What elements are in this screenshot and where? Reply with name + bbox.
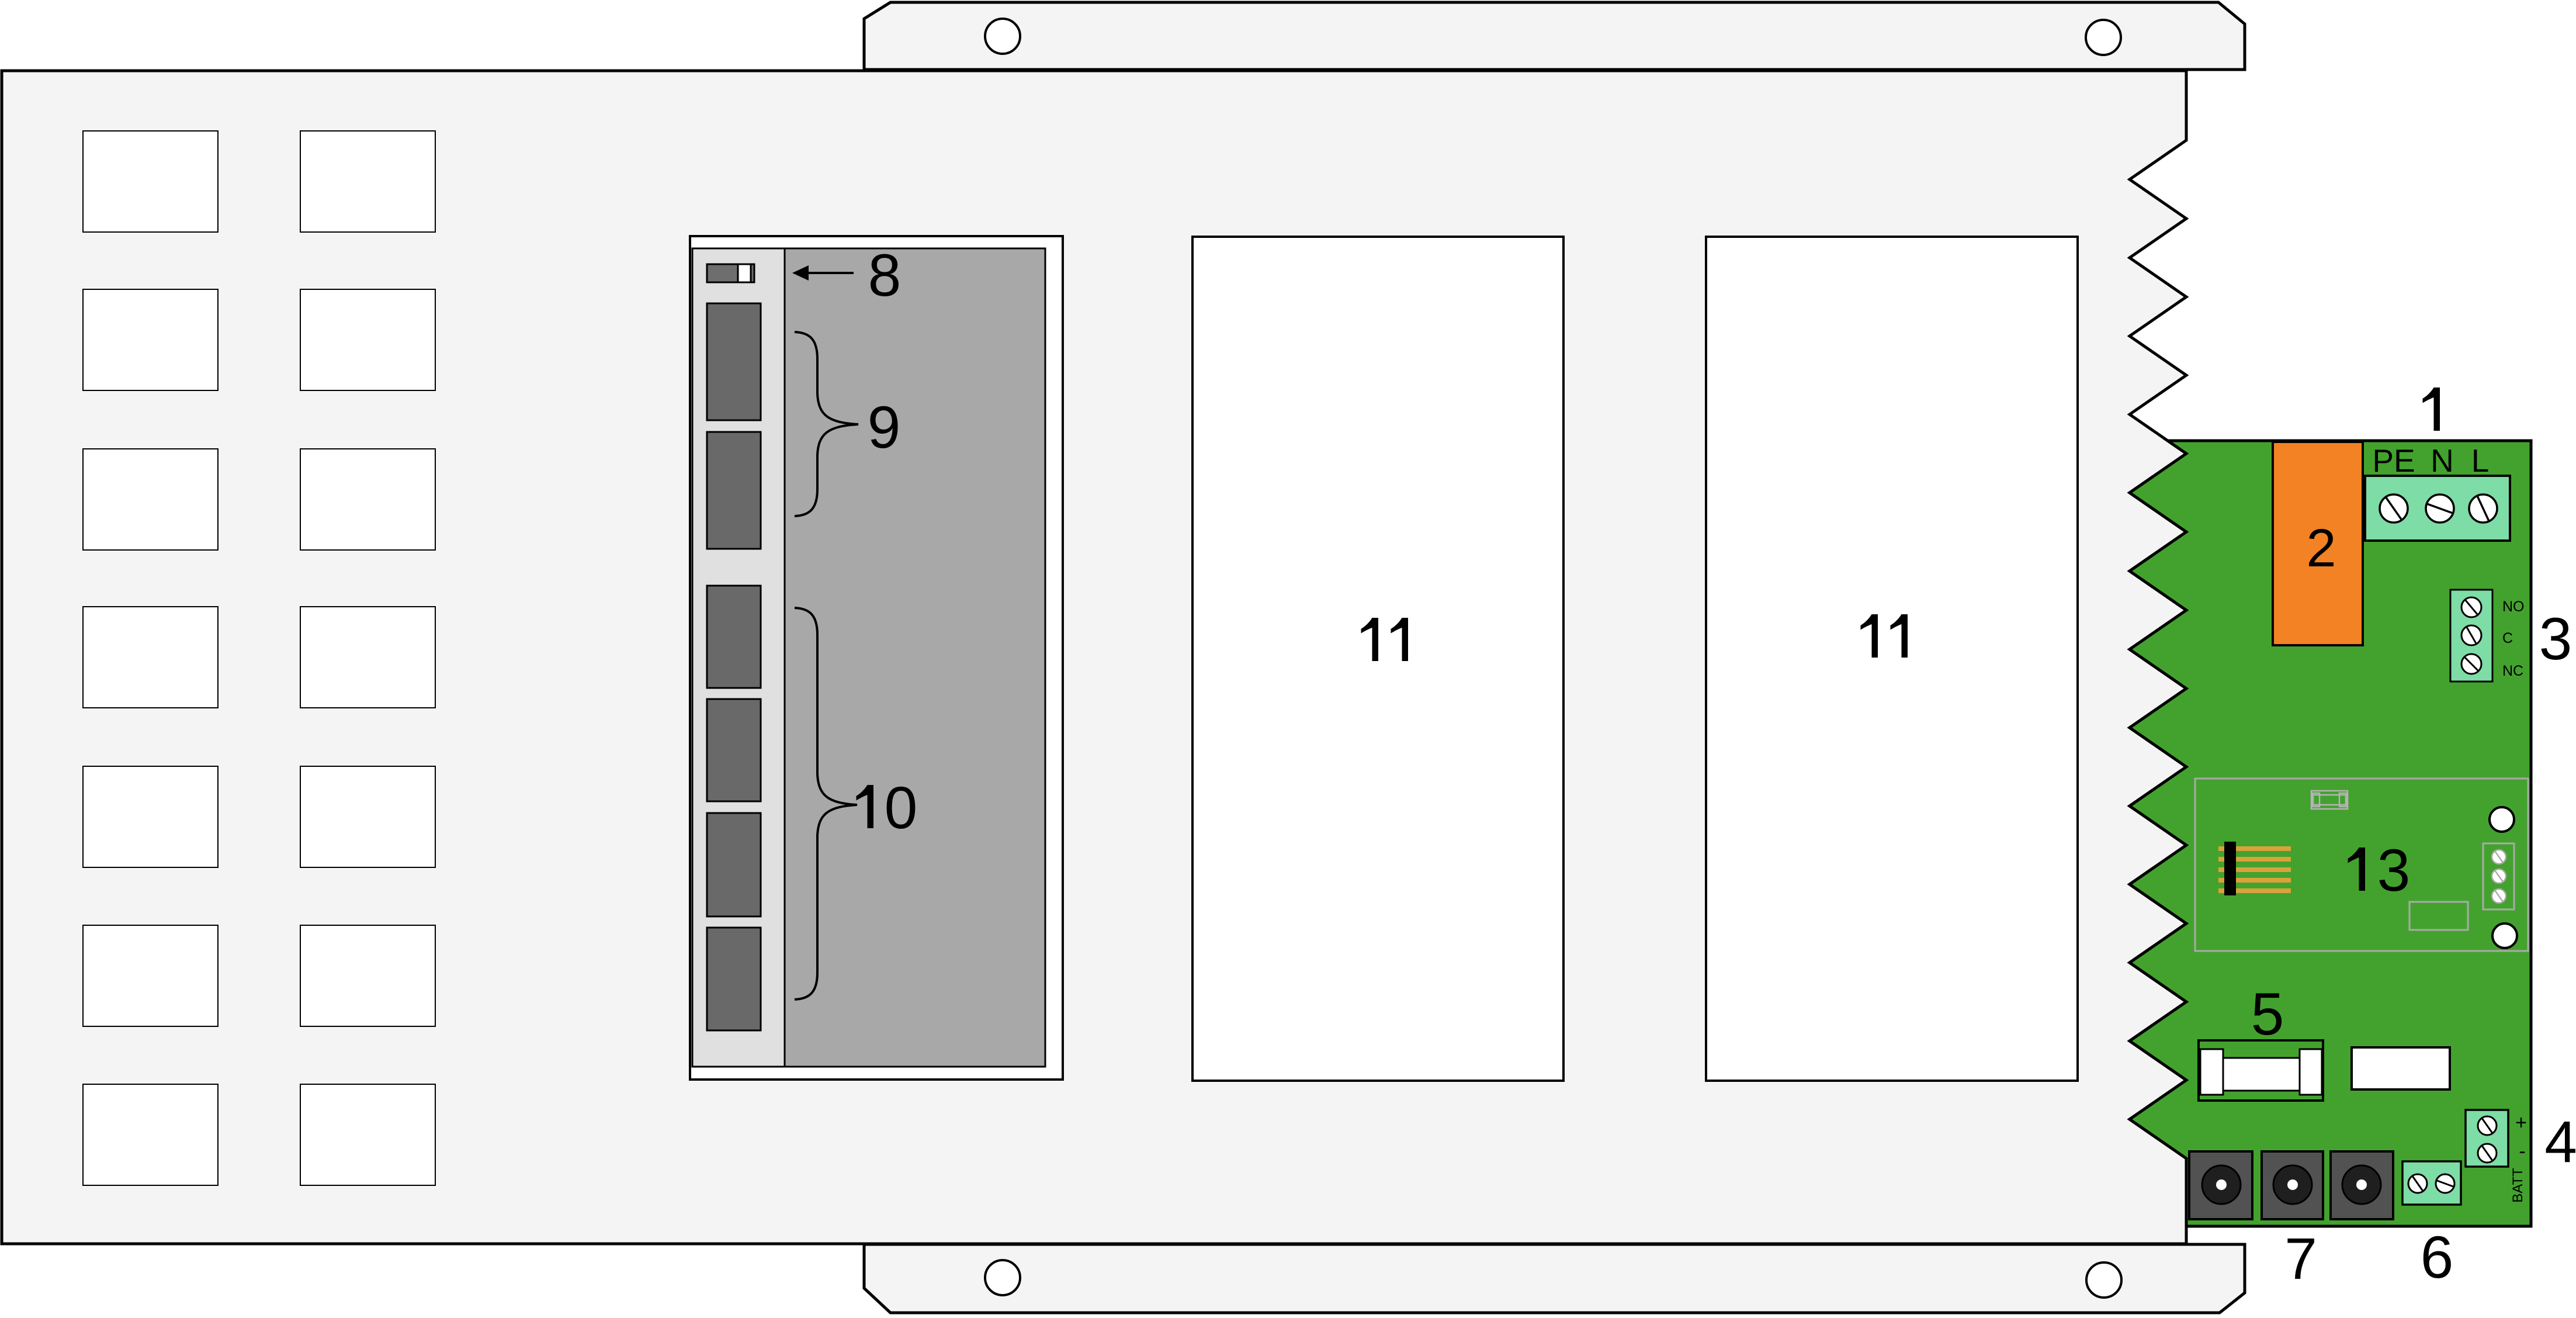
svg-text:+: + <box>2515 1112 2527 1134</box>
svg-text:9: 9 <box>868 394 901 461</box>
svg-text:NO: NO <box>2502 599 2525 615</box>
svg-text:4: 4 <box>2544 1109 2576 1175</box>
svg-text:0: 0 <box>885 774 918 841</box>
svg-text:-: - <box>2519 1140 2525 1163</box>
svg-text:5: 5 <box>2251 981 2284 1047</box>
svg-text:BATT: BATT <box>2510 1168 2526 1203</box>
svg-text:3: 3 <box>2539 606 2572 672</box>
svg-text:PE: PE <box>2372 442 2415 479</box>
svg-text:3: 3 <box>2377 837 2411 904</box>
svg-text:8: 8 <box>868 242 902 309</box>
svg-text:2: 2 <box>2306 518 2336 578</box>
svg-text:6: 6 <box>2421 1224 2454 1291</box>
svg-text:C: C <box>2502 630 2513 646</box>
svg-text:L: L <box>2471 442 2490 479</box>
svg-text:NC: NC <box>2502 663 2523 679</box>
svg-text:N: N <box>2431 442 2454 479</box>
svg-text:7: 7 <box>2284 1226 2317 1292</box>
